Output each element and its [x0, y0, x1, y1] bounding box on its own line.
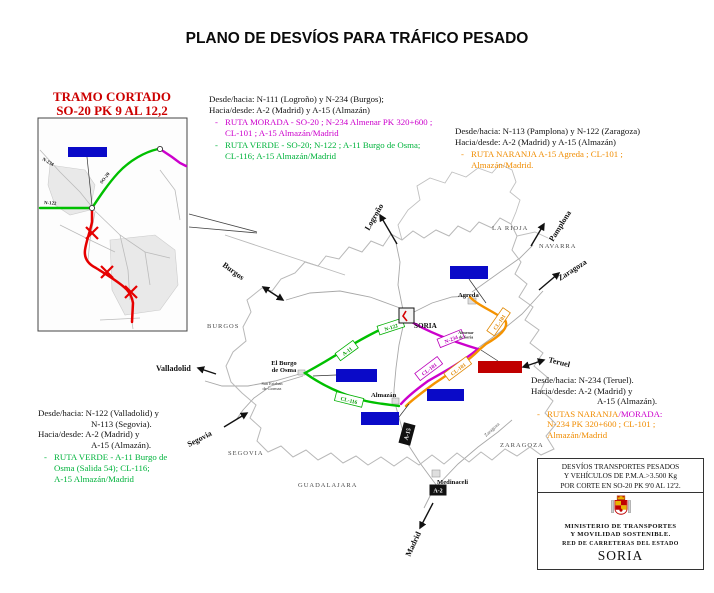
city-label-soria: SORIA — [414, 322, 438, 330]
direction-label: Burgos — [221, 260, 246, 282]
note-line: Osma (Salida 54); CL-116; — [54, 463, 167, 474]
bullet-text: RUTA VERDE - A-11 Burgo de Osma (Salida … — [54, 452, 167, 484]
valladolid-arrow — [198, 368, 216, 374]
province-label: NAVARRA — [539, 243, 576, 250]
blue-label-box — [336, 369, 377, 382]
note-line: Desde/hacia: N-234 (Teruel). — [531, 375, 709, 386]
city-label-burgo-2: de Osma — [272, 367, 297, 374]
road-shield-text: A-2 — [433, 488, 442, 494]
province-label: LA RIOJA — [492, 225, 528, 232]
note-line: Hacia/desde: A-2 (Madrid) y — [38, 429, 213, 440]
coat-of-arms-icon — [538, 495, 703, 522]
note-east: Desde/hacia: N-234 (Teruel). Hacia/desde… — [531, 375, 709, 441]
segovia-arrow — [224, 413, 247, 427]
note-line: Desde/hacia: N-113 (Pamplona) y N-122 (Z… — [455, 126, 705, 137]
bullet-dash: - — [461, 149, 471, 170]
direction-label: Madrid — [404, 530, 423, 558]
province-label: SEGOVIA — [228, 450, 264, 457]
inset-road-label-n122: N-122 — [44, 201, 57, 207]
note-line: RUTA VERDE - A-11 Burgo de — [54, 452, 167, 463]
note-line: Almazán/Madrid — [547, 430, 662, 441]
rutas-naranja-morada-bullet: - RUTAS NARANJA/MORADA: N-234 PK 320+600… — [531, 409, 709, 441]
bullet-dash: - — [537, 409, 547, 441]
city-label-medinaceli: Medinaceli — [437, 479, 468, 486]
bullet-text: RUTAS NARANJA/MORADA: N-234 PK 320+600 ;… — [547, 409, 662, 441]
legend-line: Y VEHÍCULOS DE P.M.A.>3.500 Kg — [540, 471, 701, 480]
route-naranja-bullet: - RUTA NARANJA A-15 Agreda ; CL-101 ; Al… — [455, 149, 705, 170]
inset-title: TRAMO CORTADO SO-20 PK 9 AL 12,2 — [30, 90, 194, 118]
note-north: Desde/hacia: N-111 (Logroño) y N-234 (Bu… — [209, 94, 464, 162]
ministry-line: Y MOVILIDAD SOSTENIBLE. — [538, 531, 703, 539]
legend-line: DESVÍOS TRANSPORTES PESADOS — [540, 462, 701, 471]
route-morada-bullet: - RUTA MORADA - SO-20 ; N-234 Almenar PK… — [209, 117, 464, 138]
rutas-naranja-text: RUTAS NARANJA — [547, 409, 618, 419]
logrono-arrow — [380, 215, 397, 244]
note-line: Hacia/desde: A-2 (Madrid) y — [531, 386, 709, 397]
note-line: Desde/hacia: N-111 (Logroño) y N-234 (Bu… — [209, 94, 464, 105]
red-label-box — [478, 361, 522, 373]
madrid-arrow — [420, 503, 433, 528]
inset-junction-node — [157, 146, 162, 151]
blue-label-box — [427, 389, 464, 401]
bullet-text: RUTA VERDE - SO-20; N-122 ; A-11 Burgo d… — [225, 140, 420, 161]
note-line: Almazán/Madrid. — [471, 160, 623, 171]
ministry-line: MINISTERIO DE TRANSPORTES — [538, 523, 703, 531]
road-label-a11: A-11 — [335, 340, 358, 360]
bullet-dash: - — [215, 117, 225, 138]
bullet-dash: - — [44, 452, 54, 484]
bullet-text: RUTA MORADA - SO-20 ; N-234 Almenar PK 3… — [225, 117, 432, 138]
legend-province: SORIA — [538, 548, 703, 564]
page-title: PLANO DE DESVÍOS PARA TRÁFICO PESADO — [0, 30, 714, 48]
note-line: Hacia/desde: A-2 (Madrid) y A-15 (Almazá… — [209, 105, 464, 116]
note-line: A-15 Almazán/Madrid — [54, 474, 167, 485]
route-verde-bullet: - RUTA VERDE - SO-20; N-122 ; A-11 Burgo… — [209, 140, 464, 161]
city-label-agreda: Agreda — [458, 292, 479, 299]
legend-header: DESVÍOS TRANSPORTES PESADOS Y VEHÍCULOS … — [538, 459, 703, 493]
inset-map: N-234 N-122 SO-20 — [38, 118, 187, 331]
ministry-name: MINISTERIO DE TRANSPORTES Y MOVILIDAD SO… — [538, 523, 703, 539]
note-line: A-15 (Almazán). — [597, 396, 709, 407]
road-network-label: RED DE CARRETERAS DEL ESTADO — [538, 541, 703, 547]
blue-label-box — [361, 412, 399, 425]
inset-junction-node — [89, 205, 94, 210]
note-line: N-234 PK 320+600 ; CL-101 ; — [547, 419, 662, 430]
province-label: ZARAGOZA — [500, 442, 544, 449]
town-label-san-esteban-2: de Gormaz — [263, 386, 282, 391]
note-line: CL-101 ; A-15 Almazán/Madrid — [225, 128, 432, 139]
navarra-boundary — [517, 232, 548, 238]
province-label: BURGOS — [207, 323, 239, 330]
city-label-burgo-1: El Burgo — [271, 360, 297, 367]
direction-label: Pamplona — [547, 209, 573, 243]
route-verde-bullet: - RUTA VERDE - A-11 Burgo de Osma (Salid… — [38, 452, 213, 484]
note-line: CL-116; A-15 Almazán/Madrid — [225, 151, 420, 162]
note-line: Desde/hacia: N-122 (Valladolid) y — [38, 408, 213, 419]
direction-label: Teruel — [548, 355, 572, 369]
inset-pointer-wedge — [189, 214, 257, 233]
note-northeast: Desde/hacia: N-113 (Pamplona) y N-122 (Z… — [455, 126, 705, 170]
note-line: N-113 (Segovia). — [91, 419, 213, 430]
note-line: RUTA MORADA - SO-20 ; N-234 Almenar PK 3… — [225, 117, 432, 128]
legend-box: DESVÍOS TRANSPORTES PESADOS Y VEHÍCULOS … — [537, 458, 704, 570]
detour-plan-page: { "title": "PLANO DE DESVÍOS PARA TRÁFIC… — [0, 0, 714, 593]
road-shield-a2: A-2 — [430, 485, 446, 495]
note-southwest: Desde/hacia: N-122 (Valladolid) y N-113 … — [38, 408, 213, 484]
province-label: GUADALAJARA — [298, 482, 357, 489]
note-line: Hacia/desde: A-2 (Madrid) y A-15 (Almazá… — [455, 137, 705, 148]
soria-province-outline — [226, 218, 556, 466]
note-line: A-15 (Almazán). — [91, 440, 213, 451]
inset-title-line2: SO-20 PK 9 AL 12,2 — [30, 104, 194, 118]
note-line: RUTAS NARANJA/MORADA: — [547, 409, 662, 420]
bullet-dash: - — [215, 140, 225, 161]
road-label-cl116: CL-116 — [334, 392, 363, 408]
town-label-almenar-2: de Soria — [459, 335, 473, 340]
note-line: RUTA VERDE - SO-20; N-122 ; A-11 Burgo d… — [225, 140, 420, 151]
legend-line: POR CORTE EN SO-20 PK 9'0 AL 12'2. — [540, 481, 701, 490]
city-label-almazan: Almazán — [371, 392, 397, 399]
road-label-cl101-magenta: CL-101 — [415, 357, 443, 381]
inset-title-line1: TRAMO CORTADO — [30, 90, 194, 104]
note-line: RUTA NARANJA A-15 Agreda ; CL-101 ; — [471, 149, 623, 160]
morada-text: /MORADA: — [618, 409, 662, 419]
direction-label: Valladolid — [156, 364, 191, 373]
blue-label-box — [450, 266, 488, 279]
direction-label: Zaragoza — [556, 257, 588, 282]
bullet-text: RUTA NARANJA A-15 Agreda ; CL-101 ; Alma… — [471, 149, 623, 170]
blue-label-box — [68, 147, 107, 157]
province-labels: BURGOS LA RIOJA NAVARRA ZARAGOZA SEGOVIA… — [207, 225, 576, 489]
